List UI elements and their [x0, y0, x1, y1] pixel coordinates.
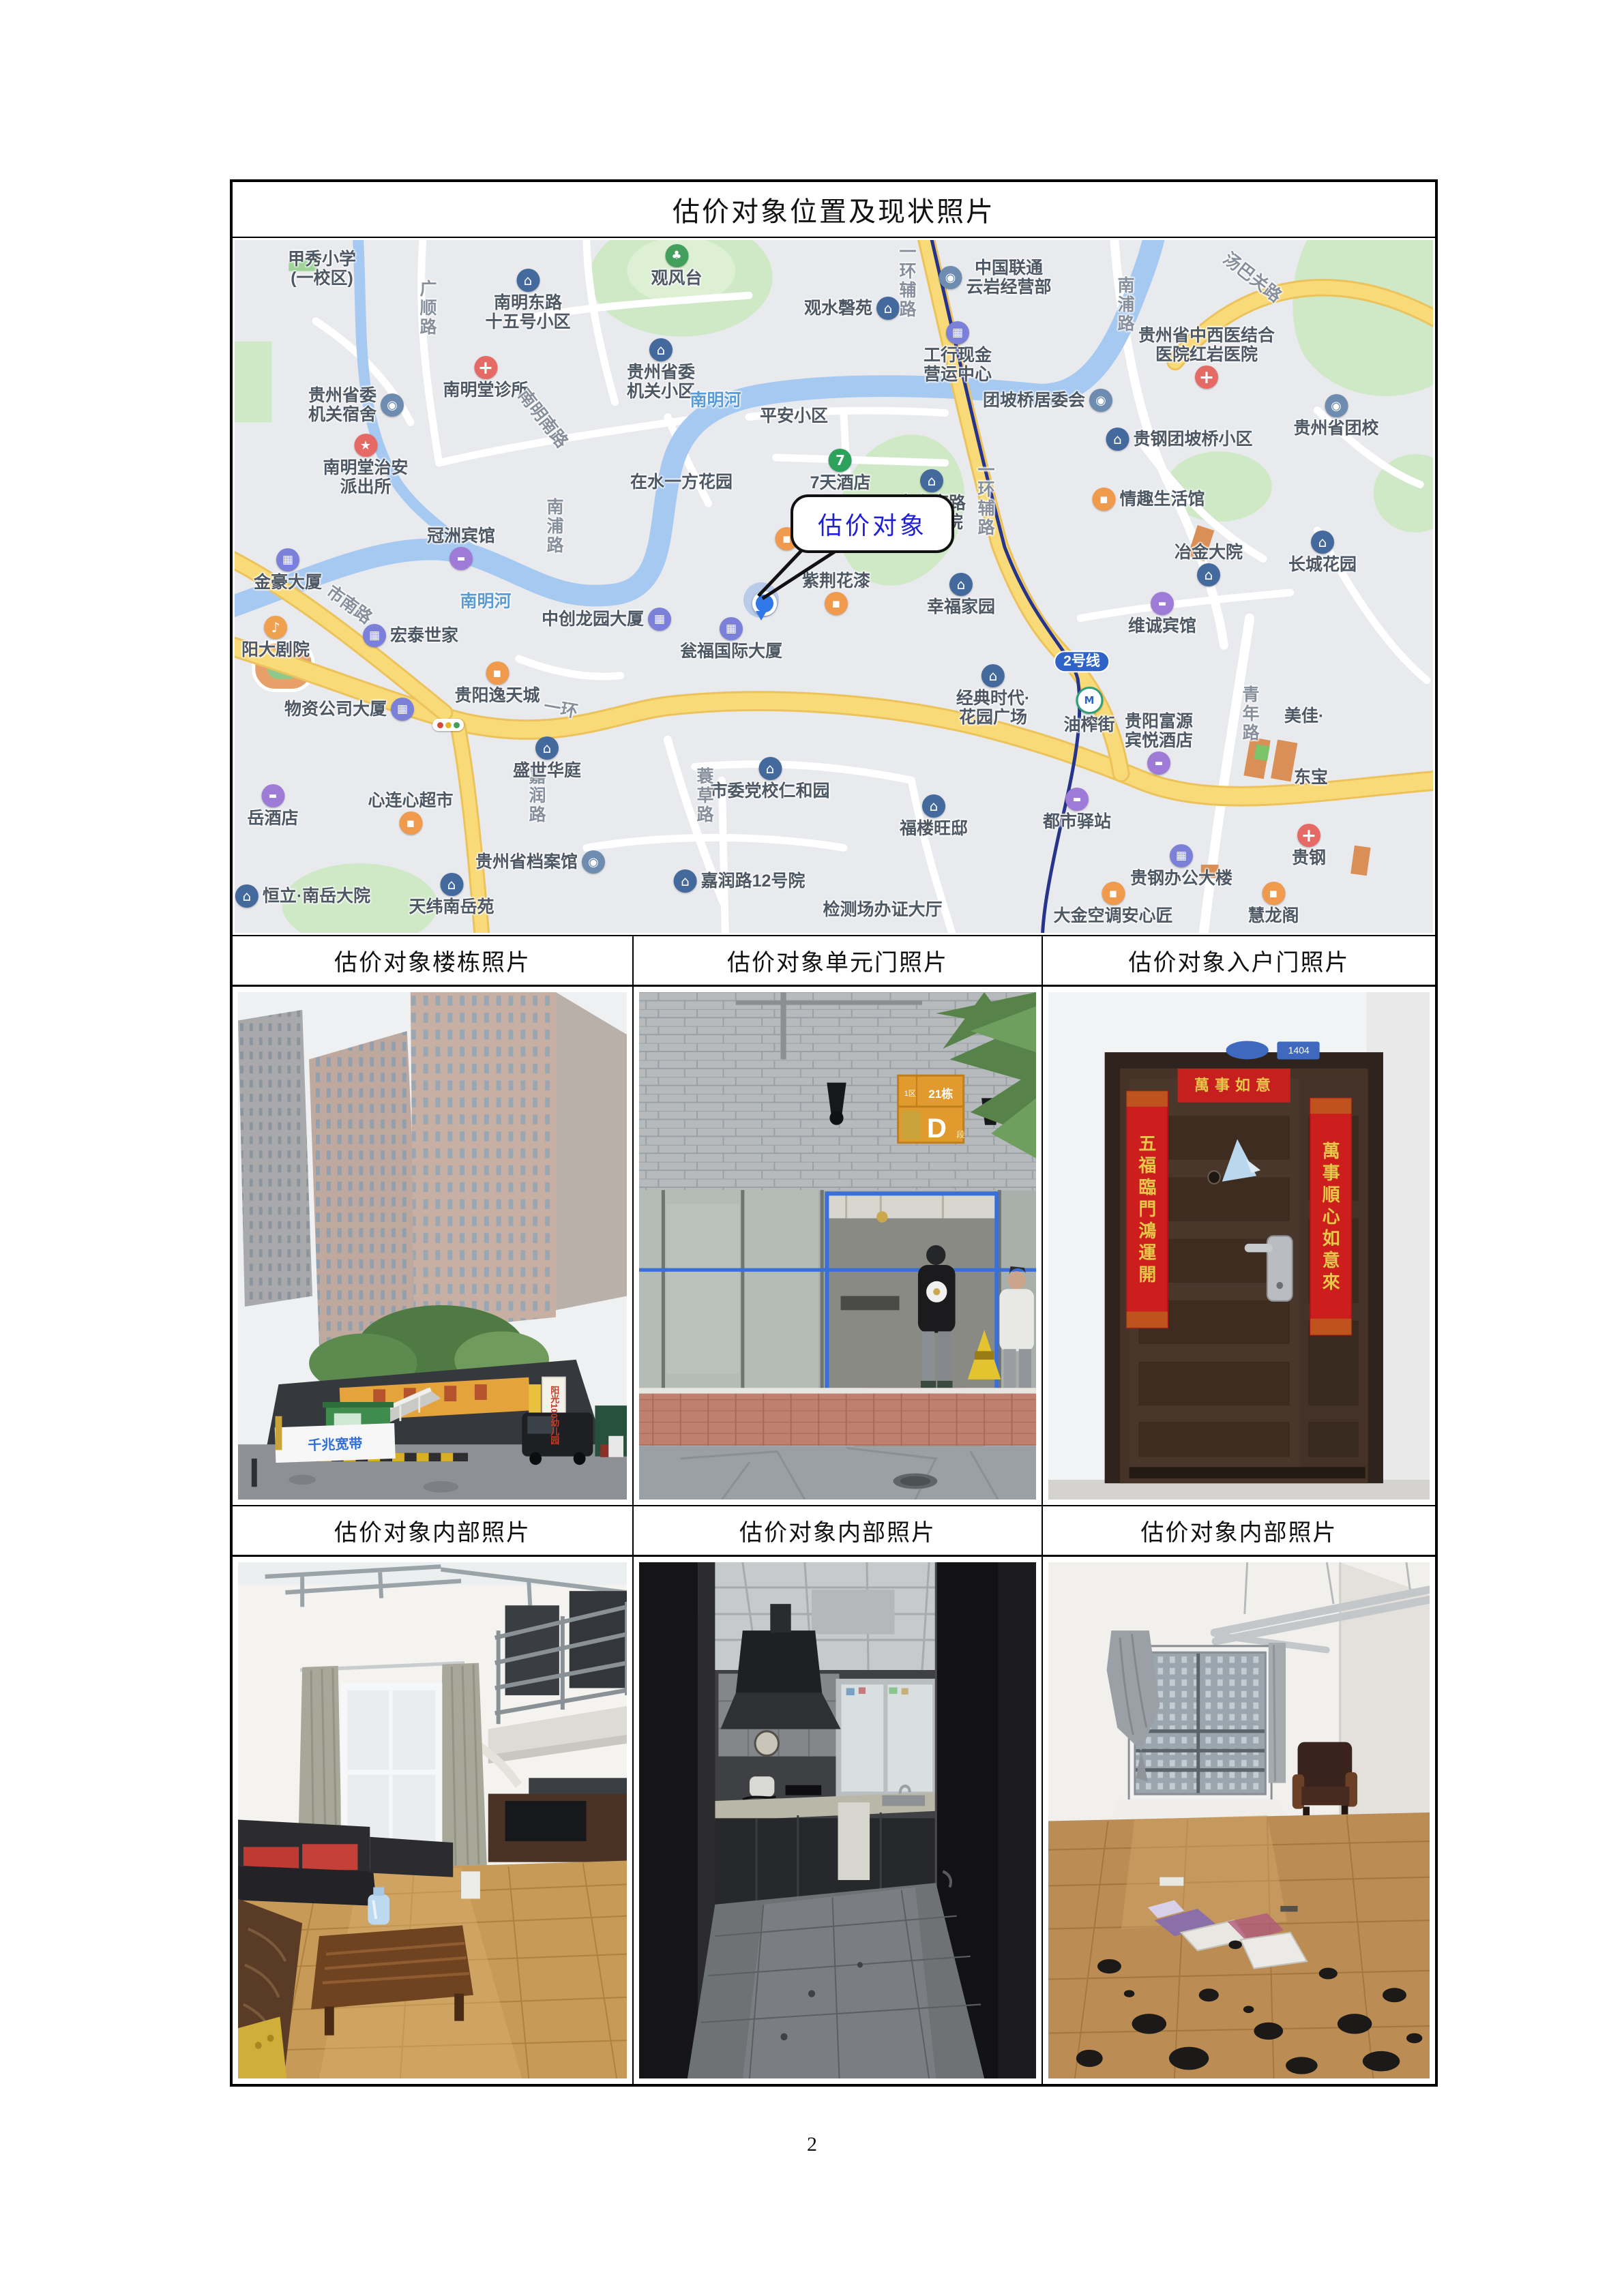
map-label-text: 情趣生活馆 [1119, 490, 1205, 509]
map-label-text: 恒立·南岳大院 [263, 886, 370, 906]
map-label-text: 贵州省委 机关小区 [627, 363, 695, 401]
map-label-text: 紫荆花漆 [802, 571, 870, 591]
map-label-text: 一环辅路 [975, 461, 994, 537]
poi-icon [922, 794, 945, 818]
map-label-text: 南明东路 十五号小区 [485, 293, 570, 331]
header-interior-photo-1: 估价对象内部照片 [233, 1506, 634, 1557]
map-label-text: 长城花园 [1288, 555, 1357, 574]
map-label: 中创龙园大厦 [542, 608, 671, 631]
poi-icon [264, 616, 287, 639]
entry-door-photo-illustration [1048, 992, 1430, 1500]
target-callout-text: 估价对象 [818, 506, 927, 541]
map-label: 甲秀小学 (一校区) [288, 250, 356, 288]
map-label-text: 大金空调安心匠 [1053, 906, 1172, 925]
poi-icon [276, 548, 299, 571]
poi-icon [876, 297, 900, 320]
interior-photo-1-cell [233, 1557, 634, 2084]
map-label-text: 贵州省团校 [1293, 419, 1378, 438]
poi-icon [1102, 882, 1125, 905]
traffic-light-icon [432, 719, 464, 731]
map-label: 都市驿站 [1043, 788, 1111, 831]
header-entry-door-photo: 估价对象入户门照片 [1043, 936, 1435, 987]
poi-icon [758, 757, 782, 780]
map-label-text: 青年路 [1240, 685, 1259, 743]
map-label-text: 金豪大厦 [254, 573, 322, 592]
poi-icon [648, 608, 671, 631]
poi-icon [1076, 687, 1103, 714]
poi-icon [363, 624, 386, 647]
map-label: 市委党校仁和园 [710, 757, 829, 801]
poi-icon [949, 573, 973, 596]
map-label: 油榨街 [1063, 687, 1114, 734]
map-label: 南浦路 [544, 498, 563, 555]
interior-photo-2-cell [634, 1557, 1043, 2084]
map-label-text: 冠洲宾馆 [427, 526, 495, 546]
poi-icon [829, 449, 852, 472]
map-label: 幸福家园 [927, 573, 995, 616]
map-label-text: 观风台 [651, 269, 702, 288]
map-label: 观水磬苑 [804, 297, 900, 320]
map-label-text: 东宝 [1294, 768, 1328, 787]
poi-icon [582, 850, 605, 874]
map-label: 南明堂诊所 [443, 356, 528, 400]
map-label-text: 团坡桥居委会 [983, 391, 1085, 410]
location-map: 甲秀小学 (一校区) 广顺路 南明东路 十五号小区 观风台 观水 [235, 240, 1433, 933]
map-label-text: 美佳· [1284, 706, 1324, 726]
map-label: 心连心超市 [368, 791, 453, 835]
poi-icon [535, 736, 559, 760]
map-label: 天纬南岳苑 [409, 873, 494, 916]
map-label: 冠洲宾馆 [427, 526, 495, 570]
map-label: 贵州省委 机关宿舍 [308, 386, 404, 424]
map-label: 一环 [542, 697, 579, 721]
map-label-text: 7天酒店 [810, 473, 871, 492]
map-label-text: 盛世华庭 [513, 761, 581, 780]
map-label: 平安小区 [760, 406, 828, 426]
map-label: 大金空调安心匠 [1053, 882, 1172, 925]
map-label-text: 南明堂治安 派出所 [323, 458, 408, 496]
map-label-text: 岳酒店 [247, 809, 298, 828]
map-label-text: 天纬南岳苑 [409, 897, 494, 916]
interior-photo-living-room [238, 1562, 627, 2078]
unit-door-photo: 1区 21栋 D 段 [639, 992, 1036, 1500]
map-label: 汤巴关路 [1220, 249, 1285, 306]
map-label: 贵州省中西医结合 医院红岩医院 [1138, 326, 1275, 389]
map-label-text: 贵钢团坡桥小区 [1133, 430, 1252, 449]
map-label: 团坡桥居委会 [983, 389, 1112, 412]
map-label-text: 一环 [542, 697, 579, 721]
header-building-photo: 估价对象楼栋照片 [233, 936, 634, 987]
map-label: 贵州省档案馆 [475, 850, 605, 874]
page-number: 2 [807, 2133, 817, 2156]
map-label-text: 宏泰世家 [390, 626, 458, 645]
poi-icon [235, 884, 259, 908]
map-label-text: 工行现金 营运中心 [924, 346, 992, 384]
map-label-text: 一环辅路 [897, 243, 916, 319]
map-label: 瓮福国际大厦 [680, 617, 782, 661]
map-label: 蓑草路 [694, 767, 713, 824]
map-label: 市南路 [323, 582, 375, 628]
map-label: 中国联通 云岩经营部 [939, 258, 1051, 297]
entry-door-photo: 萬事如意 五福臨門鴻運開 萬事順心如意來 1404 [1048, 992, 1430, 1500]
poi-icon [939, 266, 962, 289]
unit-door-photo-cell: 1区 21栋 D 段 [634, 987, 1043, 1506]
poi-icon [1106, 428, 1129, 451]
map-label-text: 2号线 [1054, 651, 1110, 672]
building-photo: 千兆宽带 阳光100幼儿园 [238, 992, 627, 1500]
map-label: 维诚宾馆 [1128, 592, 1196, 636]
map-label: 广顺路 [417, 280, 437, 337]
map-label: 盛世华庭 [513, 736, 581, 780]
map-label-text: 观水磬苑 [804, 299, 872, 318]
map-label-text: 物资公司大厦 [284, 700, 387, 719]
poi-icon [354, 434, 377, 457]
map-label: 贵州省团校 [1293, 394, 1378, 438]
poi-icon [665, 244, 688, 267]
map-label: 贵钢 [1292, 824, 1326, 867]
map-label: 物资公司大厦 [284, 698, 414, 721]
document-page: 估价对象位置及现状照片 [0, 0, 1624, 2296]
map-label: 一环辅路 [975, 461, 994, 537]
poi-icon [920, 469, 943, 492]
map-label-text: 在水一方花园 [630, 473, 733, 492]
map-label: 宏泰世家 [363, 624, 458, 647]
map-label-text: 市委党校仁和园 [710, 781, 829, 801]
poi-icon [649, 338, 673, 361]
map-label: 检测场办证大厅 [823, 900, 942, 919]
map-label-text: 瓮福国际大厦 [680, 642, 782, 661]
map-label-text: 维诚宾馆 [1128, 616, 1196, 636]
map-label: 嘉润路12号院 [674, 869, 806, 893]
header-interior-photo-2: 估价对象内部照片 [634, 1506, 1043, 1557]
map-label-text: 中创龙园大厦 [542, 610, 644, 629]
poi-icon [1147, 751, 1170, 775]
table-title-cell: 估价对象位置及现状照片 [233, 182, 1435, 238]
poi-icon [1195, 366, 1218, 389]
poi-icon [1311, 531, 1334, 554]
map-label: 工行现金 营运中心 [924, 321, 992, 384]
map-label-text: 贵州省委 机关宿舍 [308, 386, 377, 424]
map-label-text: 幸福家园 [927, 597, 995, 616]
map-label: 2号线 [1054, 651, 1110, 672]
map-label: 南浦路 [1115, 276, 1134, 333]
poi-icon [516, 269, 540, 292]
map-label: 美佳· [1284, 706, 1324, 726]
map-label: 一环辅路 [897, 243, 916, 319]
map-label-text: 油榨街 [1063, 715, 1114, 734]
map-label-text: 贵钢 [1292, 848, 1326, 867]
poi-icon [1065, 788, 1089, 811]
map-label: 金豪大厦 [254, 548, 322, 592]
map-label: 青年路 [1240, 685, 1259, 743]
poi-icon [449, 547, 473, 570]
map-label: 贵阳富源 宾悦酒店 [1125, 712, 1193, 775]
map-label: 贵阳逸天城 [454, 661, 540, 705]
poi-icon [399, 811, 422, 835]
map-label-text: 嘉润路12号院 [701, 871, 806, 891]
map-label-text: 心连心超市 [368, 791, 453, 810]
map-label: 贵州省委 机关小区 [627, 338, 695, 401]
poi-icon [981, 664, 1005, 687]
map-label: 7天酒店 [810, 449, 871, 492]
page-title: 估价对象位置及现状照片 [673, 190, 995, 229]
map-label: 紫荆花漆 [802, 571, 870, 615]
map-label: 福楼旺邸 [900, 794, 968, 838]
map-label-text: 检测场办证大厅 [823, 900, 942, 919]
entry-door-photo-cell: 萬事如意 五福臨門鴻運開 萬事順心如意來 1404 [1043, 987, 1435, 1506]
poi-icon [1197, 563, 1220, 586]
poi-icon [1325, 394, 1348, 417]
map-label-text: 汤巴关路 [1220, 249, 1285, 306]
map-label-text: 阳大剧院 [241, 640, 310, 659]
target-callout: 估价对象 [791, 494, 954, 553]
map-label: 南明东路 十五号小区 [485, 269, 570, 331]
map-label-text: 平安小区 [760, 406, 828, 426]
map-label-text: 贵州省档案馆 [475, 852, 578, 871]
poi-icon [381, 393, 404, 417]
map-label-text: 南浦路 [1115, 276, 1134, 333]
map-label: 南明河 [690, 391, 741, 410]
poi-icon [486, 661, 509, 685]
poi-icon [674, 869, 697, 893]
map-label: 阳大剧院 [241, 616, 310, 659]
map-label: 长城花园 [1288, 531, 1357, 574]
interior-photo-3-cell [1043, 1557, 1435, 2084]
unit-door-photo-illustration [639, 992, 1036, 1500]
map-label-text: 南明河 [460, 592, 511, 611]
map-label-text: 都市驿站 [1043, 812, 1111, 831]
map-label-text: 福楼旺邸 [900, 819, 968, 838]
poi-icon [1089, 389, 1112, 412]
header-unit-door-photo: 估价对象单元门照片 [634, 936, 1043, 987]
map-label: 恒立·南岳大院 [235, 884, 370, 908]
poi-icon [825, 592, 848, 615]
map-label: 岳酒店 [247, 784, 298, 828]
poi-icon [474, 356, 497, 379]
poi-icon [440, 873, 463, 896]
poi-icon [946, 321, 969, 344]
map-label: 情趣生活馆 [1092, 488, 1205, 511]
map-label-text: 经典时代· 花园广场 [956, 689, 1030, 727]
poi-icon [1092, 488, 1115, 511]
map-label: 在水一方花园 [630, 473, 733, 492]
map-label: 观风台 [651, 244, 702, 288]
map-label-text: 贵阳逸天城 [454, 686, 540, 705]
map-label: 南明南路 [514, 386, 572, 451]
interior-photo-kitchen [639, 1562, 1036, 2078]
map-label-text: 市南路 [323, 582, 375, 628]
map-label-text: 南浦路 [544, 498, 563, 555]
photo-table: 估价对象位置及现状照片 [230, 179, 1438, 2087]
interior-photo-1-illustration [238, 1562, 627, 2078]
building-photo-cell: 千兆宽带 阳光100幼儿园 [233, 987, 634, 1506]
map-label-text: 南明河 [690, 391, 741, 410]
map-label: 南明河 [460, 592, 511, 611]
poi-icon [261, 784, 284, 807]
map-label-text: 南明南路 [514, 386, 572, 451]
map-labels-layer: 甲秀小学 (一校区) 广顺路 南明东路 十五号小区 观风台 观水 [235, 240, 1433, 933]
poi-icon [391, 698, 414, 721]
map-label-text: 贵阳富源 宾悦酒店 [1125, 712, 1193, 750]
pin-tip [756, 611, 767, 621]
map-label: 东宝 [1294, 768, 1328, 787]
map-cell: 甲秀小学 (一校区) 广顺路 南明东路 十五号小区 观风台 观水 [233, 238, 1435, 936]
building-photo-illustration [238, 992, 627, 1500]
map-label-text: 蓑草路 [694, 767, 713, 824]
map-label-text: 甲秀小学 (一校区) [288, 250, 356, 288]
map-label: 经典时代· 花园广场 [956, 664, 1030, 727]
map-label: 慧龙阁 [1247, 882, 1299, 925]
map-label: 贵钢团坡桥小区 [1106, 428, 1252, 451]
interior-photo-2-illustration [639, 1562, 1036, 2078]
interior-photo-bedroom [1048, 1562, 1430, 2078]
interior-photo-3-illustration [1048, 1562, 1430, 2078]
poi-icon [1262, 882, 1285, 905]
poi-icon [1170, 844, 1193, 867]
map-label: 冶金大院 [1175, 543, 1243, 586]
header-interior-photo-3: 估价对象内部照片 [1043, 1506, 1435, 1557]
map-label-text: 慧龙阁 [1247, 906, 1299, 925]
map-label-text: 广顺路 [417, 280, 437, 337]
poi-icon [1297, 824, 1320, 847]
poi-icon [1151, 592, 1174, 615]
poi-icon [720, 617, 743, 640]
map-label: 南明堂治安 派出所 [323, 434, 408, 496]
map-label-text: 贵州省中西医结合 医院红岩医院 [1138, 326, 1275, 364]
map-label-text: 冶金大院 [1175, 543, 1243, 562]
map-label-text: 中国联通 云岩经营部 [966, 258, 1051, 297]
